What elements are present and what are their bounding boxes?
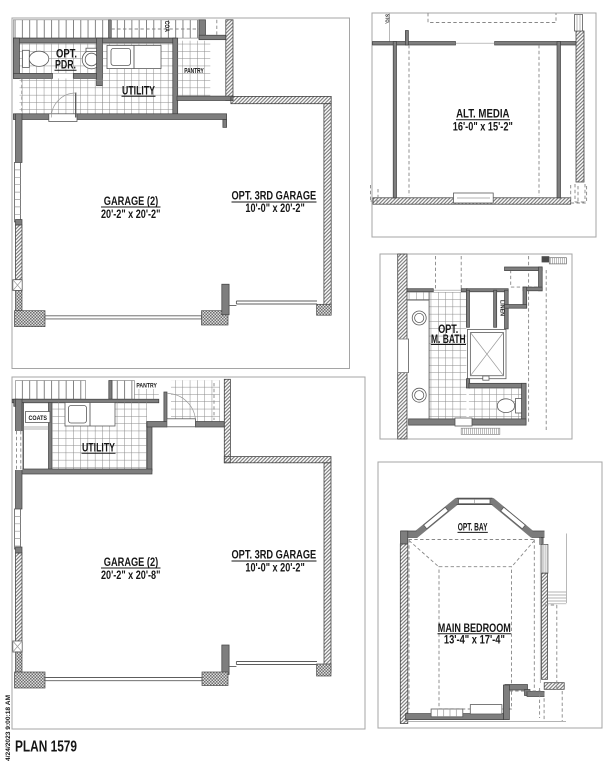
svg-text:UTILITY: UTILITY	[82, 440, 115, 454]
svg-text:20'-2" x 20'-8": 20'-2" x 20'-8"	[101, 568, 160, 582]
svg-text:ALT. MEDIA: ALT. MEDIA	[456, 107, 510, 121]
svg-text:COATS: COATS	[29, 415, 48, 422]
svg-text:20'-2" x 20'-2": 20'-2" x 20'-2"	[101, 207, 160, 221]
svg-text:10'-0" x 20'-2": 10'-0" x 20'-2"	[245, 561, 304, 575]
svg-text:M. BATH: M. BATH	[431, 332, 466, 346]
svg-text:GARAGE (2): GARAGE (2)	[104, 555, 158, 569]
svg-text:PANTRY: PANTRY	[136, 383, 157, 390]
svg-text:LINEN: LINEN	[499, 300, 505, 316]
svg-text:16'-0" x 15'-2": 16'-0" x 15'-2"	[453, 120, 513, 134]
svg-text:STO.: STO.	[384, 14, 390, 24]
svg-text:4/24/2023 9:00:18 AM: 4/24/2023 9:00:18 AM	[5, 695, 12, 761]
svg-text:PLAN 1579: PLAN 1579	[15, 739, 77, 756]
svg-text:PANTRY: PANTRY	[184, 66, 204, 75]
svg-text:10'-0" x 20'-2": 10'-0" x 20'-2"	[245, 201, 304, 215]
svg-text:PDR.: PDR.	[55, 58, 76, 72]
svg-text:OPT. BAY: OPT. BAY	[458, 521, 488, 533]
svg-text:UTILITY: UTILITY	[122, 83, 155, 97]
svg-text:GARAGE (2): GARAGE (2)	[104, 194, 158, 208]
svg-text:13'-4" x 17'-4": 13'-4" x 17'-4"	[444, 633, 505, 647]
svg-text:COA: COA	[163, 21, 169, 33]
